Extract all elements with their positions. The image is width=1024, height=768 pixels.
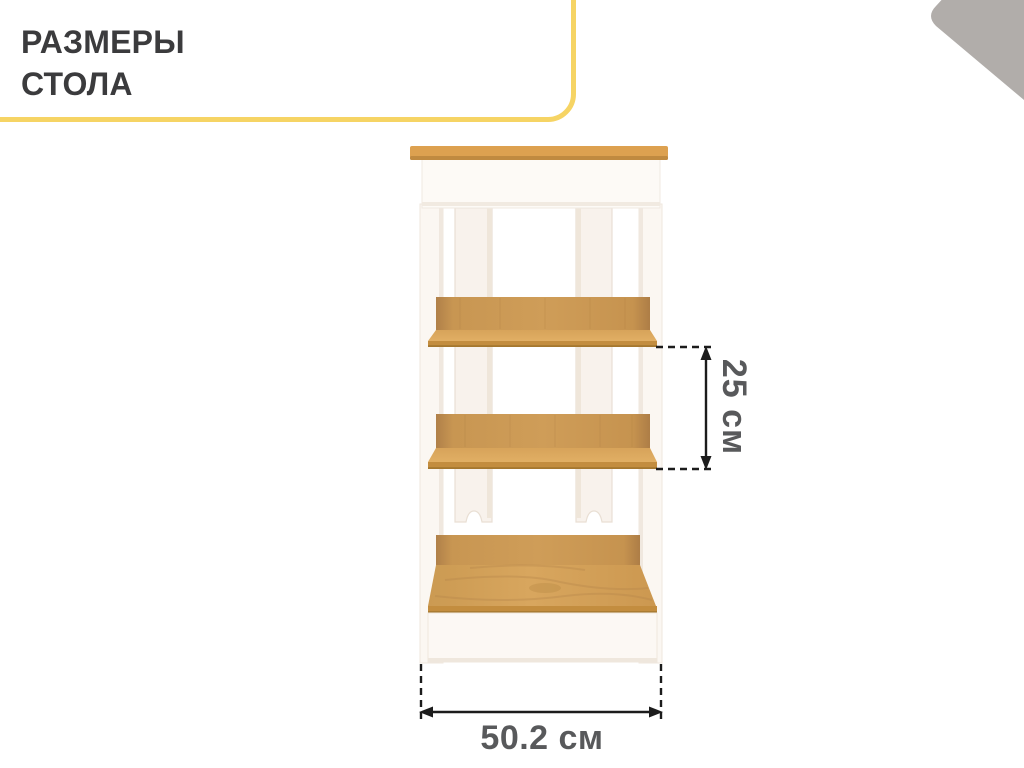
shelf-lower xyxy=(428,414,657,469)
shelf-upper xyxy=(428,297,657,347)
corner-triangle-decoration xyxy=(931,0,1024,100)
apron xyxy=(422,159,660,208)
dimension-shelf-spacing xyxy=(656,346,716,470)
product-dimensions-infographic: РАЗМЕРЫ СТОЛА xyxy=(0,0,1024,768)
table-illustration xyxy=(0,0,1024,768)
width-label: 50.2 см xyxy=(412,714,672,762)
back-post-left xyxy=(455,208,492,522)
plinth xyxy=(428,613,657,662)
table-top xyxy=(410,146,668,208)
table-back-posts xyxy=(455,208,612,522)
back-post-right xyxy=(576,208,612,522)
dimension-width xyxy=(419,664,663,721)
shelf-spacing-label: 25 см xyxy=(713,327,755,487)
shelf-bottom xyxy=(428,535,657,662)
